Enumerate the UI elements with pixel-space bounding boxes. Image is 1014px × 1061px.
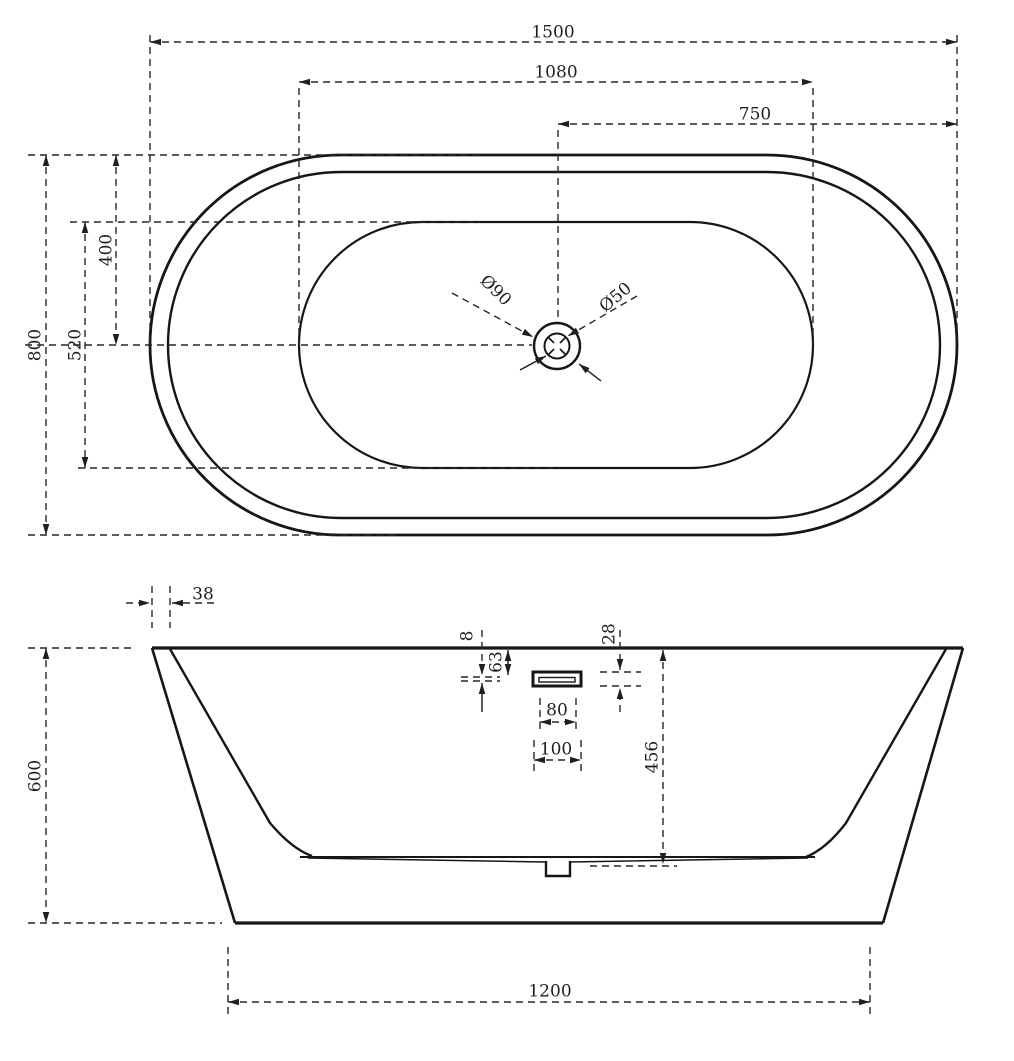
dim-drain-offset: 750	[739, 107, 771, 124]
dim-basin-length: 1080	[534, 65, 577, 82]
dim-rim-thickness: 38	[192, 587, 214, 604]
overflow-detail	[533, 672, 581, 686]
dim-half-width: 400	[99, 234, 116, 266]
dim-overflow-outer-height: 28	[602, 623, 619, 645]
dim-base-length: 1200	[528, 984, 571, 1001]
dim-overall-width: 800	[28, 329, 45, 361]
front-view-outline	[152, 648, 963, 923]
dim-overflow-center-depth: 63	[489, 651, 506, 673]
dim-basin-width: 520	[68, 329, 85, 361]
dim-overflow-slot-width: 80	[546, 703, 568, 720]
dim-inner-depth: 456	[645, 741, 662, 773]
dim-overflow-slot-height: 8	[460, 631, 477, 642]
dim-overflow-outer-width: 100	[540, 742, 572, 759]
drain	[534, 323, 580, 369]
drawing-linework	[0, 0, 1014, 1061]
bathtub-dimension-drawing: 1500 1080 750 800 520 400 Ø90 Ø50 38 600…	[0, 0, 1014, 1061]
dim-height: 600	[28, 760, 45, 792]
front-view-dimension-lines	[28, 586, 870, 1017]
dim-overall-length: 1500	[531, 25, 574, 42]
